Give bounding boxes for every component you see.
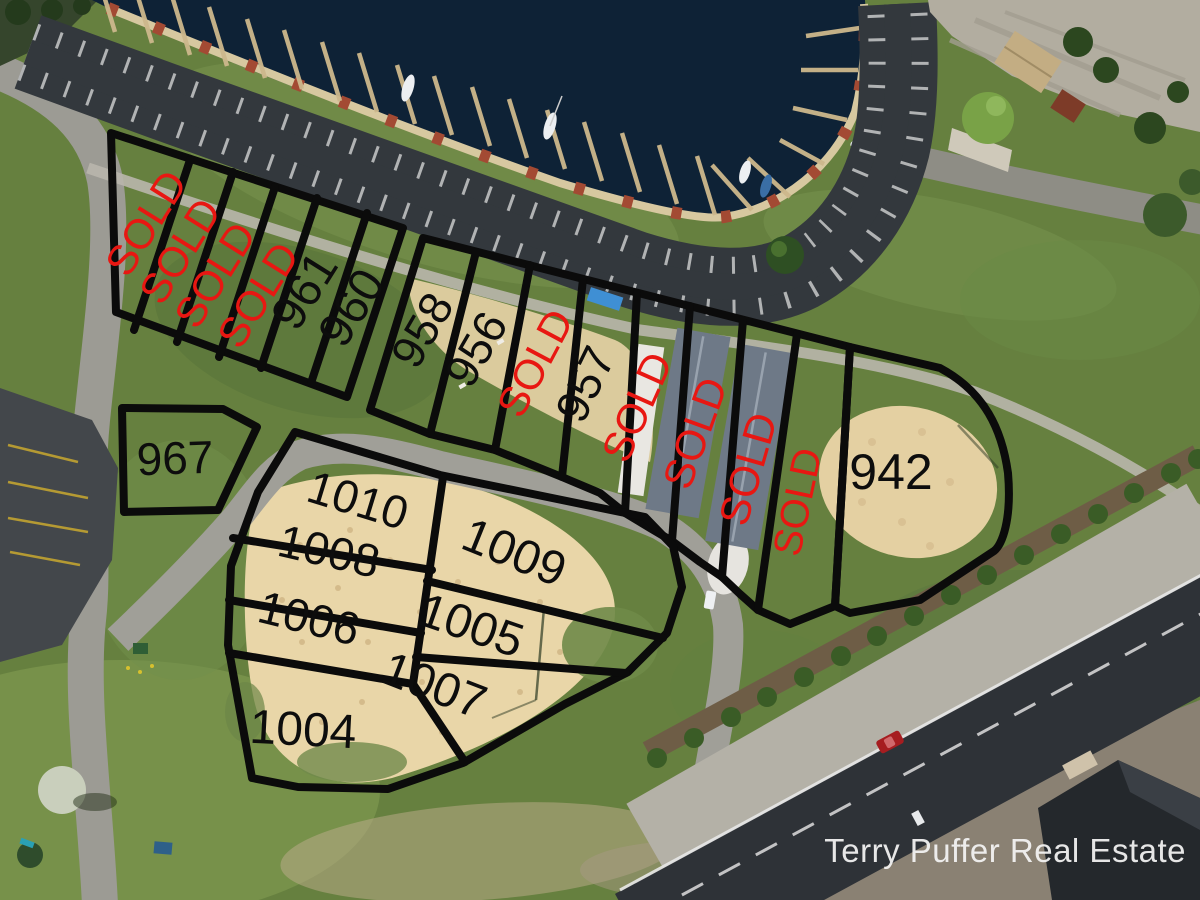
tree xyxy=(5,0,31,25)
tree xyxy=(962,92,1014,144)
sand-speckle xyxy=(918,428,926,436)
bush xyxy=(1088,504,1108,524)
bush xyxy=(1161,463,1181,483)
grass-patch xyxy=(960,240,1200,360)
tree xyxy=(1063,27,1093,57)
bush xyxy=(831,646,851,666)
lot-942-label: 942 xyxy=(849,444,932,500)
bush xyxy=(1014,545,1034,565)
bush xyxy=(684,728,704,748)
bush xyxy=(757,687,777,707)
sand-speckle xyxy=(359,699,365,705)
bollard xyxy=(150,664,154,668)
bush xyxy=(721,707,741,727)
bollard xyxy=(138,670,142,674)
tree xyxy=(1143,193,1187,237)
bollard xyxy=(126,666,130,670)
sand-speckle xyxy=(517,689,523,695)
aerial-lot-map: SOLD SOLD SOLD SOLD 961 960 958 956 SOLD… xyxy=(0,0,1200,900)
utility-box xyxy=(133,643,148,654)
lot-967-label: 967 xyxy=(136,431,215,486)
bush xyxy=(977,565,997,585)
watermark-text: Terry Puffer Real Estate xyxy=(824,832,1186,869)
tree-shadow xyxy=(73,793,117,811)
sand-speckle xyxy=(926,542,934,550)
aerial-plat-screenshot: SOLD SOLD SOLD SOLD 961 960 958 956 SOLD… xyxy=(0,0,1200,900)
bush xyxy=(1124,483,1144,503)
sand-speckle xyxy=(365,639,371,645)
bush xyxy=(647,748,667,768)
bush xyxy=(1051,524,1071,544)
sign xyxy=(154,841,173,855)
tree-highlight xyxy=(771,241,787,257)
sand-speckle xyxy=(335,585,341,591)
bush xyxy=(867,626,887,646)
bush xyxy=(794,667,814,687)
tree-highlight xyxy=(986,96,1006,116)
tree xyxy=(1167,81,1189,103)
sand-speckle xyxy=(557,649,563,655)
lot-1004-label: 1004 xyxy=(248,701,357,760)
tree xyxy=(1134,112,1166,144)
tree xyxy=(766,236,804,274)
blue-sign xyxy=(154,841,173,855)
sand-speckle xyxy=(898,518,906,526)
tree xyxy=(1093,57,1119,83)
bush xyxy=(904,606,924,626)
sand-speckle xyxy=(946,478,954,486)
